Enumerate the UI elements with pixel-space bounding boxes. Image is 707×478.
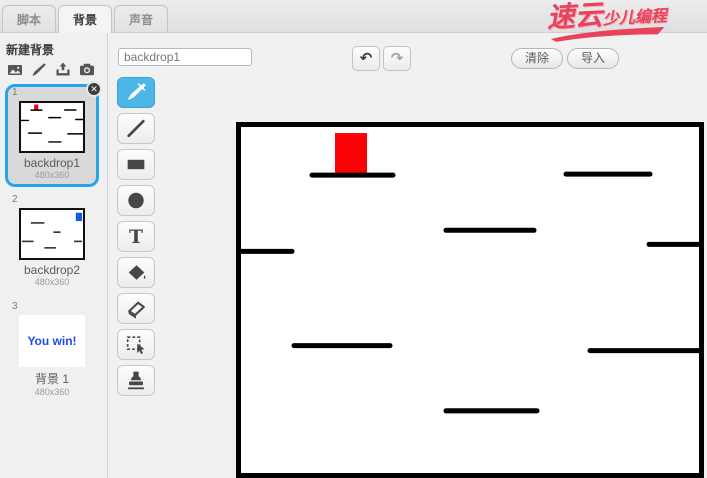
backdrop-thumbnail <box>19 208 85 260</box>
backdrop-name: 背景 1 <box>8 370 96 387</box>
backdrop-item-backdrop2[interactable]: 2backdrop2480x360 <box>5 191 99 294</box>
delete-backdrop-icon[interactable]: ✕ <box>86 81 102 97</box>
tool-eraser-button[interactable] <box>117 293 155 324</box>
select-icon <box>123 332 149 357</box>
backdrop-item-backdrop1[interactable]: 1✕backdrop1480x360 <box>5 84 99 187</box>
paint-canvas[interactable] <box>236 122 704 478</box>
fill-icon <box>123 260 149 285</box>
backdrop-thumbnail-text: You win! <box>19 315 85 367</box>
backdrop-index: 2 <box>12 194 18 205</box>
tool-stamp-button[interactable] <box>117 365 155 396</box>
tab-scripts[interactable]: 脚本 <box>2 5 56 32</box>
tool-text-button[interactable]: T <box>117 221 155 252</box>
backdrop-size: 480x360 <box>8 170 96 180</box>
tool-rectangle-button[interactable] <box>117 149 155 180</box>
backdrop-name-input[interactable] <box>118 48 252 66</box>
backdrop-name: backdrop1 <box>8 156 96 170</box>
rectangle-icon <box>123 152 149 177</box>
tool-select-button[interactable] <box>117 329 155 360</box>
svg-text:T: T <box>129 226 143 248</box>
redo-button[interactable]: ↷ <box>383 46 411 71</box>
scratch-paint-editor: 脚本背景声音 速云少儿编程 新建背景 1✕backdrop1480x3602ba… <box>0 0 707 478</box>
tab-sounds[interactable]: 声音 <box>114 5 168 32</box>
tab-bar: 脚本背景声音 <box>0 0 707 33</box>
import-button[interactable]: 导入 <box>567 48 619 69</box>
new-backdrop-upload-icon[interactable] <box>54 62 72 78</box>
tool-line-button[interactable] <box>117 113 155 144</box>
new-backdrop-label: 新建背景 <box>6 41 107 58</box>
backdrop-size: 480x360 <box>8 277 96 287</box>
clear-button[interactable]: 清除 <box>511 48 563 69</box>
ellipse-icon <box>123 188 149 213</box>
tool-fill-button[interactable] <box>117 257 155 288</box>
backdrop-size: 480x360 <box>8 387 96 397</box>
new-backdrop-buttons <box>6 62 107 78</box>
backdrop-thumbnail: You win! <box>19 315 85 367</box>
backdrop-thumbnail <box>19 101 85 153</box>
tool-ellipse-button[interactable] <box>117 185 155 216</box>
brush-icon <box>123 80 149 105</box>
backdrop-index: 3 <box>12 301 18 312</box>
undo-button[interactable]: ↶ <box>352 46 380 71</box>
backdrop-list: 1✕backdrop1480x3602backdrop2480x3603You … <box>0 84 107 404</box>
new-backdrop-camera-icon[interactable] <box>78 62 96 78</box>
text-icon: T <box>123 224 149 249</box>
sidebar: 新建背景 1✕backdrop1480x3602backdrop2480x360… <box>0 33 108 478</box>
tab-backdrops[interactable]: 背景 <box>58 5 112 33</box>
stamp-icon <box>123 368 149 393</box>
new-backdrop-paintbrush-icon[interactable] <box>30 62 48 78</box>
editor-tabs: 脚本背景声音 <box>2 5 170 32</box>
backdrop-name: backdrop2 <box>8 263 96 277</box>
line-icon <box>123 116 149 141</box>
tool-brush-button[interactable] <box>117 77 155 108</box>
paint-tool-palette: T <box>117 77 157 401</box>
new-backdrop-image-icon[interactable] <box>6 62 24 78</box>
backdrop-index: 1 <box>12 87 18 98</box>
eraser-icon <box>123 296 149 321</box>
backdrop-item-背景 1[interactable]: 3You win!背景 1480x360 <box>5 298 99 404</box>
